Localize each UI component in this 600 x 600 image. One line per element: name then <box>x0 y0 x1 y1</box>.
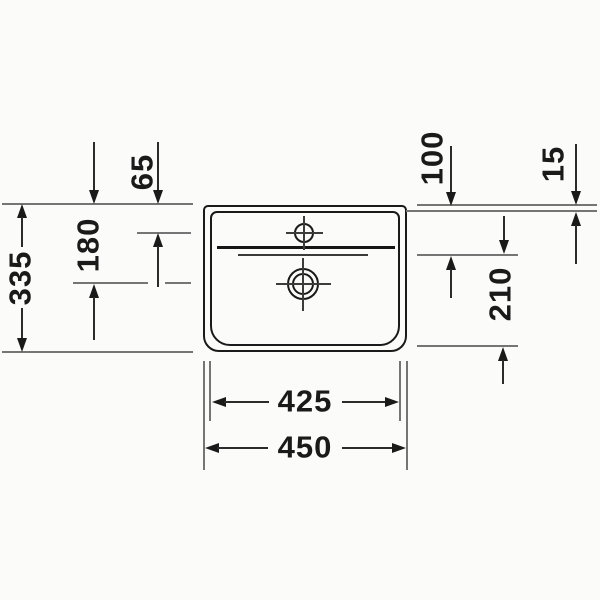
dim-180-arrow-top <box>89 190 99 204</box>
ext-line-outer-left <box>203 361 205 470</box>
ref-line-ledge-right <box>417 254 518 256</box>
dim-180-label: 180 <box>73 218 104 273</box>
tap-hole-crosshair-h <box>286 232 323 234</box>
ref-line-front-edge-left <box>2 351 193 353</box>
dim-100-stem-top <box>450 146 452 193</box>
ref-line-drain-center-left-a <box>73 282 148 284</box>
dim-450-label: 450 <box>278 432 333 463</box>
dim-425-line-left <box>224 401 269 403</box>
dim-335-stem-bottom <box>21 308 23 338</box>
ext-line-inner-left <box>209 361 211 421</box>
dim-100-label: 100 <box>417 131 448 186</box>
dim-15-label: 15 <box>538 146 569 182</box>
dim-65-stem-bottom <box>157 246 159 287</box>
basin-back-ledge-line <box>217 246 395 249</box>
ref-line-drain-center-left-b <box>165 282 191 284</box>
ext-line-outer-right <box>406 361 408 470</box>
dim-335-stem-top <box>21 217 23 247</box>
dim-180-arrow-bottom <box>89 284 99 298</box>
ref-line-back-inner-right <box>406 210 597 212</box>
dim-450-line-left <box>217 447 268 449</box>
dim-450-line-right <box>342 447 393 449</box>
dim-15-stem-top <box>575 144 577 192</box>
dim-335-arrow-bottom <box>17 338 27 352</box>
dim-180-stem-top <box>93 142 95 191</box>
dim-335-label: 335 <box>5 251 36 306</box>
technical-drawing-canvas: 335 180 65 100 210 15 425 450 <box>0 0 600 600</box>
dim-450-arrow-right <box>392 443 406 453</box>
dim-425-line-right <box>342 401 387 403</box>
dim-210-arrow-bottom <box>498 347 508 361</box>
dim-65-arrow-bottom <box>153 233 163 247</box>
tap-hole-crosshair-v <box>303 216 305 250</box>
dim-210-arrow-top <box>499 240 509 254</box>
ref-line-tap-center-left <box>137 232 191 234</box>
dim-65-label: 65 <box>127 154 158 190</box>
dim-100-arrow-bottom <box>446 256 456 270</box>
dim-15-arrow-top <box>571 191 581 205</box>
dim-15-stem-bottom <box>575 225 577 264</box>
dim-100-stem-bottom <box>450 269 452 298</box>
dim-335-arrow-top <box>17 204 27 218</box>
drain-crosshair-v <box>302 258 304 311</box>
dim-210-label: 210 <box>485 267 516 322</box>
ext-line-inner-right <box>399 361 401 421</box>
dim-15-arrow-bottom <box>571 212 581 226</box>
dim-210-stem-top <box>503 216 505 241</box>
basin-back-ledge-line-2 <box>238 254 368 256</box>
dim-65-arrow-top <box>153 190 163 204</box>
dim-425-label: 425 <box>278 386 333 417</box>
dim-210-stem-bottom <box>502 360 504 384</box>
ref-line-back-outer-right <box>417 204 597 206</box>
dim-180-stem-bottom <box>93 297 95 340</box>
drain-crosshair-h <box>276 283 331 285</box>
dim-425-arrow-right <box>385 397 399 407</box>
dim-100-arrow-top <box>446 192 456 206</box>
